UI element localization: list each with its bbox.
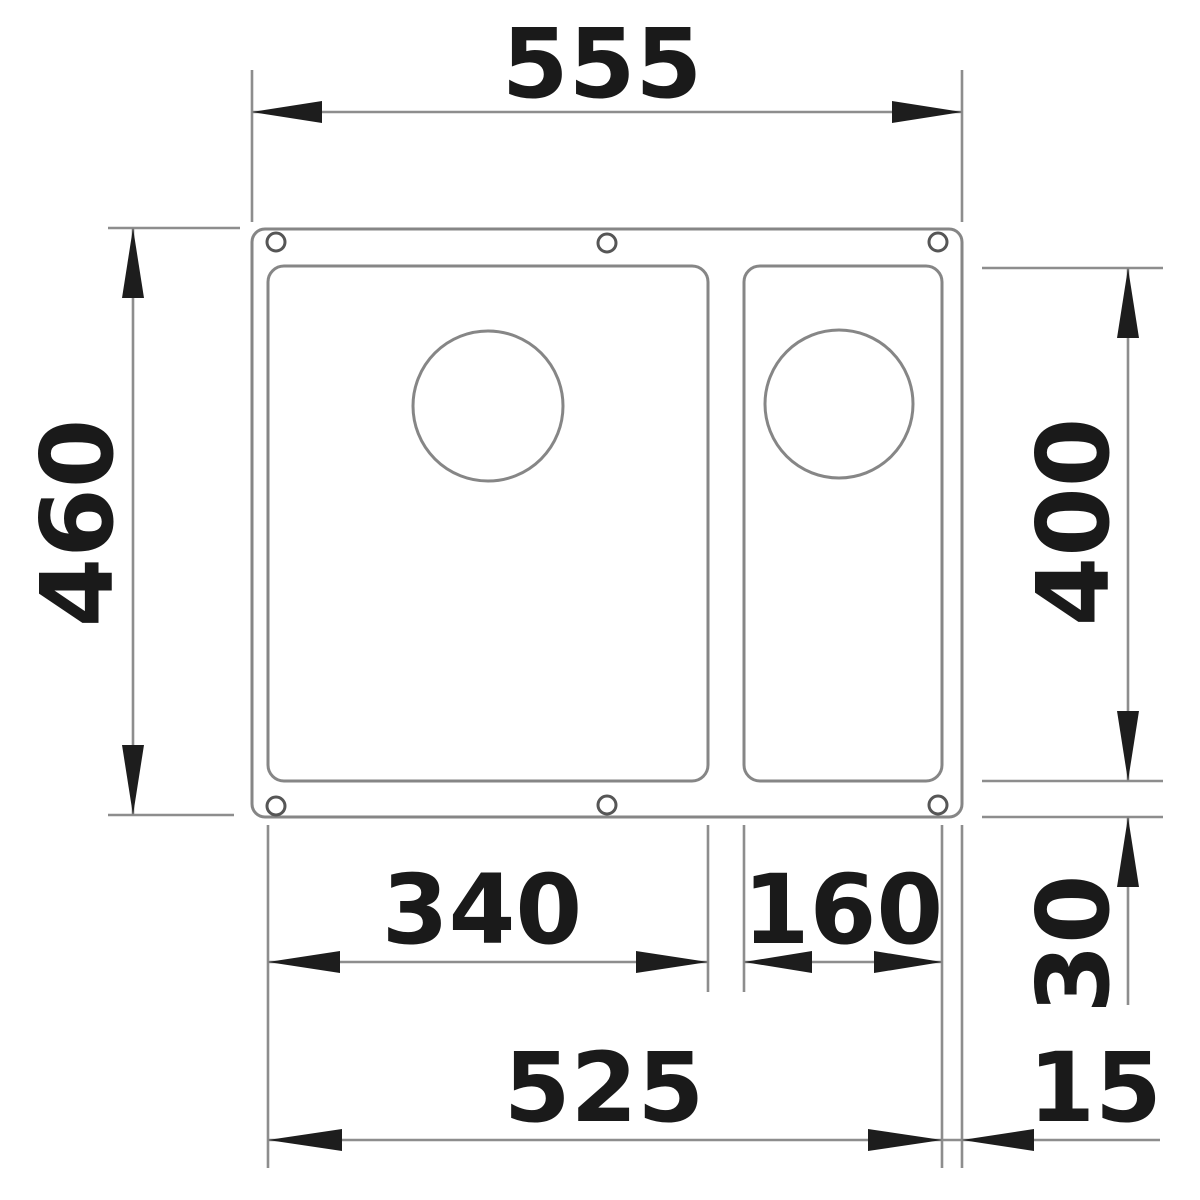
arrowhead-right: [636, 951, 708, 973]
mounting-hole-top-right: [929, 233, 947, 251]
dimension-label-overall-width: 555: [502, 8, 702, 120]
arrowhead-right-rim-outside: [962, 1129, 1034, 1151]
arrowhead-up: [122, 228, 144, 298]
sink-outer-rim-outline: [252, 229, 962, 817]
dimension-label-bowl-depth: 400: [1015, 418, 1132, 627]
dimension-overall-width: 555: [252, 8, 962, 222]
dimension-label-bowls-span: 525: [504, 1032, 704, 1144]
sink-geometry: [252, 229, 962, 817]
dimension-bowls-span: 525 15: [268, 1032, 1162, 1151]
arrowhead-left: [268, 951, 340, 973]
dimension-label-bottom-rim: 30: [1015, 874, 1132, 1013]
dimension-bottom-rim: 30: [1015, 817, 1139, 1014]
dimension-bowl-depth: 400: [982, 268, 1163, 817]
mounting-hole-bottom-center: [598, 796, 616, 814]
dimension-label-right-rim: 15: [1028, 1032, 1162, 1144]
arrowhead-down: [122, 745, 144, 815]
mounting-hole-top-center: [598, 234, 616, 252]
dimension-label-small-bowl-width: 160: [743, 854, 943, 966]
dimension-label-overall-depth: 460: [19, 419, 136, 628]
arrowhead-right: [868, 1129, 942, 1151]
arrowhead-right: [892, 101, 962, 123]
dimension-label-main-bowl-width: 340: [382, 854, 582, 966]
main-bowl-outline: [268, 266, 708, 781]
mounting-hole-top-left: [267, 233, 285, 251]
small-bowl-drain-circle: [765, 330, 913, 478]
sink-dimension-drawing: 555 460 400 30 340 16: [0, 0, 1200, 1200]
arrowhead-up: [1117, 268, 1139, 338]
arrowhead-left: [268, 1129, 342, 1151]
arrowhead-down: [1117, 711, 1139, 781]
small-bowl-outline: [744, 266, 942, 781]
arrowhead-left: [252, 101, 322, 123]
main-bowl-drain-circle: [413, 331, 563, 481]
mounting-hole-bottom-right: [929, 796, 947, 814]
dimension-overall-depth: 460: [19, 228, 240, 815]
mounting-hole-bottom-left: [267, 797, 285, 815]
technical-drawing-canvas: 555 460 400 30 340 16: [0, 0, 1200, 1200]
